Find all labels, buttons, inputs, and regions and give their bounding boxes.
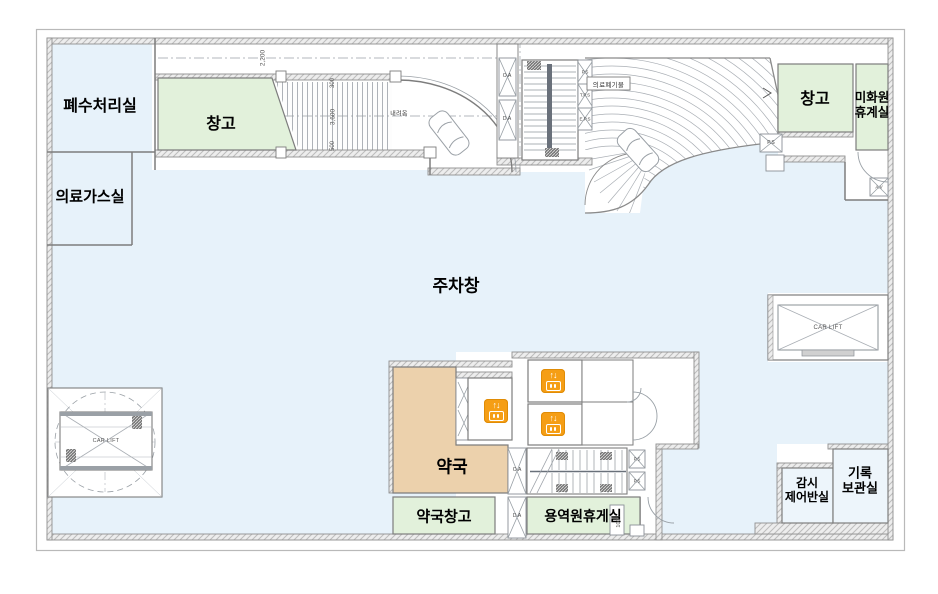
medical-waste-label: 의료폐기물 [593,79,624,89]
records-room-line1: 기록 [842,466,878,481]
floor-plan: 폐수처리실 창고 의료가스실 주차창 약국 약국창고 용역원휴게실 창고 미화원… [0,0,938,594]
records-room-line2: 보관실 [842,481,878,496]
elevator-icon: ↑↓ [541,412,565,436]
room-label-pharmacy: 약국 [436,453,467,478]
control-room-line2: 제어반실 [785,490,829,504]
car-lift-right-label: CAR LIFT [813,325,842,331]
room-label-medical-gas: 의료가스실 [55,186,124,207]
dim-500: 500 [330,141,336,151]
dim-100: 100 [616,518,622,527]
control-room-line1: 감시 [785,476,829,490]
room-label-waste-water: 폐수처리실 [63,92,137,116]
room-label-pharmacy-storage: 약국창고 [416,506,471,527]
elevator-arrows-icon: ↑↓ [550,371,557,380]
car-lift-left-label: CAR LIFT [93,438,120,444]
ramp-down-label: 내려옴 [390,109,407,118]
room-label-cleaner-lounge: 미화원 휴계실 [855,90,890,120]
shaft-label-ps-bottom2: P.S [634,479,641,484]
elevator-cab-icon [546,424,561,434]
bottom-stairs [527,448,627,494]
shaft-label-da-bottom: D.A [513,513,521,519]
top-stairs [522,60,578,160]
dim-300: 300 [330,78,336,88]
shaft-label-oa-top: O.A [503,73,512,79]
room-label-records-room: 기록 보관실 [842,466,878,497]
shaft-label-oa-bottom: O.A [513,467,522,473]
room-label-service-lounge: 용역원휴게실 [544,506,621,526]
shaft-label-av: A.V [875,185,882,190]
room-label-control-room: 감시 제어반실 [785,476,829,504]
shaft-label-ps-bottom1: P.S [634,457,641,462]
shaft-label-da-top: D.A [503,116,511,122]
elevator-cab-icon [489,411,504,421]
elevator-arrows-icon: ↑↓ [493,401,500,410]
shaft-label-tps-core: T.P.S [580,93,590,98]
cleaner-lounge-line1: 미화원 [855,90,890,105]
room-label-storage-left: 창고 [206,110,235,134]
elevator-icon: ↑↓ [484,399,508,423]
elevator-arrows-icon: ↑↓ [550,414,557,423]
shaft-label-ps-core: P.S [582,70,589,75]
room-label-parking: 주차창 [433,272,480,297]
dim-3600: 3,600 [330,109,337,125]
room-label-storage-right: 창고 [800,85,829,109]
elevator-icon: ↑↓ [541,369,565,393]
shaft-label-eps-core: E.P.S [580,117,591,122]
cleaner-lounge-line2: 휴계실 [855,105,890,120]
elevator-cab-icon [546,381,561,391]
shaft-label-ps-topright: P.S [767,140,774,146]
dim-2200: 2,200 [260,50,267,66]
